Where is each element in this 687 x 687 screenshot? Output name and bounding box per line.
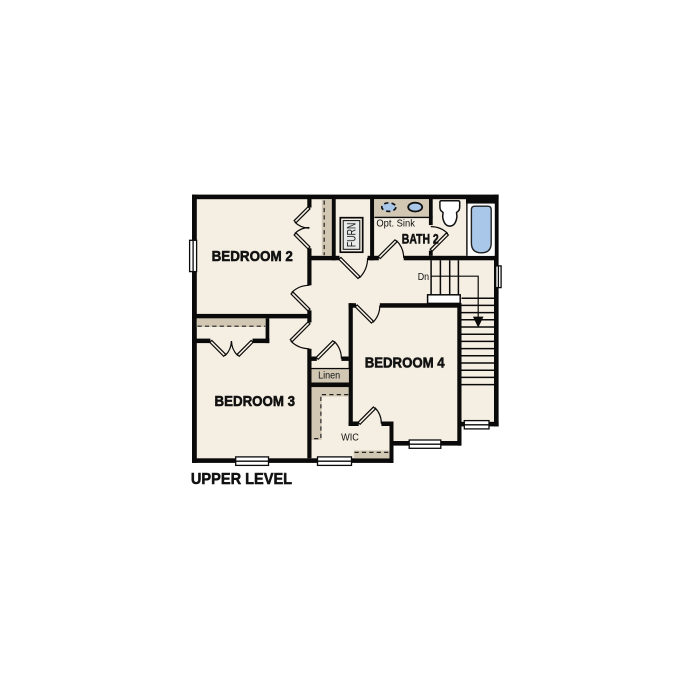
svg-text:WIC: WIC <box>341 432 359 443</box>
svg-text:BEDROOM 2: BEDROOM 2 <box>212 249 293 265</box>
svg-text:BATH 2: BATH 2 <box>402 231 439 246</box>
svg-text:Linen: Linen <box>318 370 340 382</box>
svg-text:FURN: FURN <box>346 223 358 248</box>
svg-text:BEDROOM 3: BEDROOM 3 <box>214 394 295 410</box>
svg-text:Dn: Dn <box>418 272 429 283</box>
svg-text:UPPER LEVEL: UPPER LEVEL <box>191 471 292 488</box>
svg-text:BEDROOM 4: BEDROOM 4 <box>365 356 445 372</box>
svg-text:Opt. Sink: Opt. Sink <box>376 219 415 230</box>
